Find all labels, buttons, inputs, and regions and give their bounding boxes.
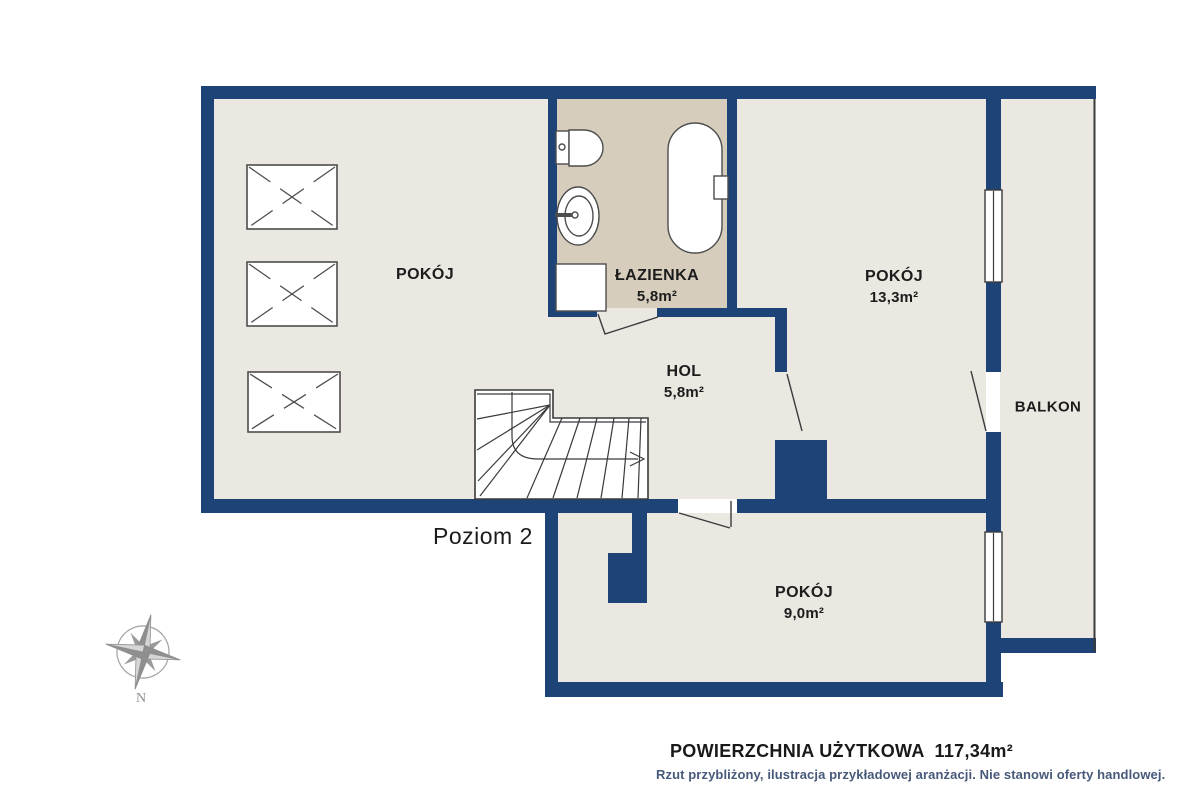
room-label-pokoj-bottom: POKÓJ 9,0m²: [775, 585, 833, 621]
room-area: 5,8m²: [664, 385, 704, 400]
sink: [557, 187, 599, 245]
skylight-window: [248, 372, 340, 432]
room-name: HOL: [664, 364, 704, 380]
floor-areas: [214, 99, 1094, 682]
room-name: POKÓJ: [775, 585, 833, 601]
room-name: BALKON: [1015, 400, 1082, 415]
window-balcony-room: [985, 190, 1002, 282]
balcony-floor: [1000, 99, 1094, 638]
room-label-balkon: BALKON: [1015, 400, 1082, 415]
level-label: Poziom 2: [433, 523, 533, 550]
toilet: [556, 130, 603, 166]
washing-machine: [556, 264, 606, 311]
skylight-window: [247, 262, 337, 326]
room-area: 5,8m²: [615, 289, 699, 304]
usable-area-title: POWIERZCHNIA UŻYTKOWA 117,34m²: [670, 741, 1013, 762]
floor-plan-page: N POKÓJ ŁAZIENKA 5,8m² HOL 5,8m² POKÓJ 1…: [0, 0, 1200, 801]
skylight-window: [247, 165, 337, 229]
room-name: ŁAZIENKA: [615, 268, 699, 284]
compass-rose: N: [98, 607, 188, 706]
room-name: POKÓJ: [865, 269, 923, 285]
compass-north-label: N: [136, 691, 146, 706]
room-area: 13,3m²: [865, 290, 923, 305]
room-label-hol: HOL 5,8m²: [664, 364, 704, 400]
disclaimer-text: Rzut przybliżony, ilustracja przykładowe…: [656, 767, 1165, 782]
room-area: 9,0m²: [775, 606, 833, 621]
room-label-pokoj-right: POKÓJ 13,3m²: [865, 269, 923, 305]
room-label-lazienka: ŁAZIENKA 5,8m²: [615, 268, 699, 304]
window-balcony-bottom-room: [985, 532, 1002, 622]
room-name: POKÓJ: [396, 267, 454, 283]
bathtub: [668, 123, 728, 253]
room-label-pokoj-left: POKÓJ: [396, 267, 454, 283]
skylights: [247, 165, 340, 432]
